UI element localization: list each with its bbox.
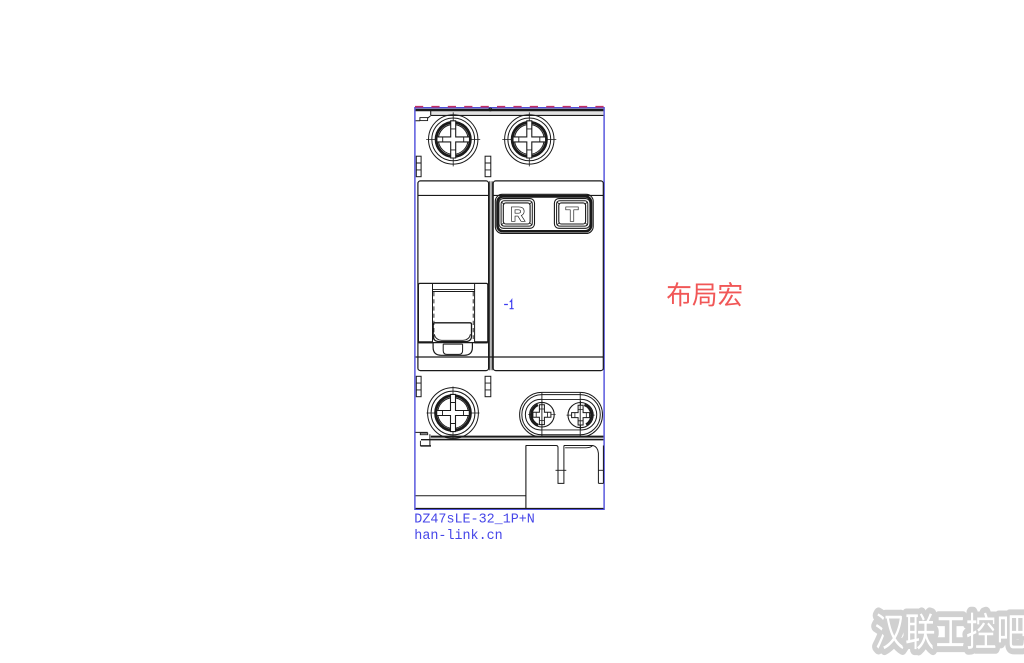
svg-text:han-link.cn: han-link.cn [414,529,502,544]
svg-text:DZ47sLE-32_1P+N: DZ47sLE-32_1P+N [414,512,535,527]
